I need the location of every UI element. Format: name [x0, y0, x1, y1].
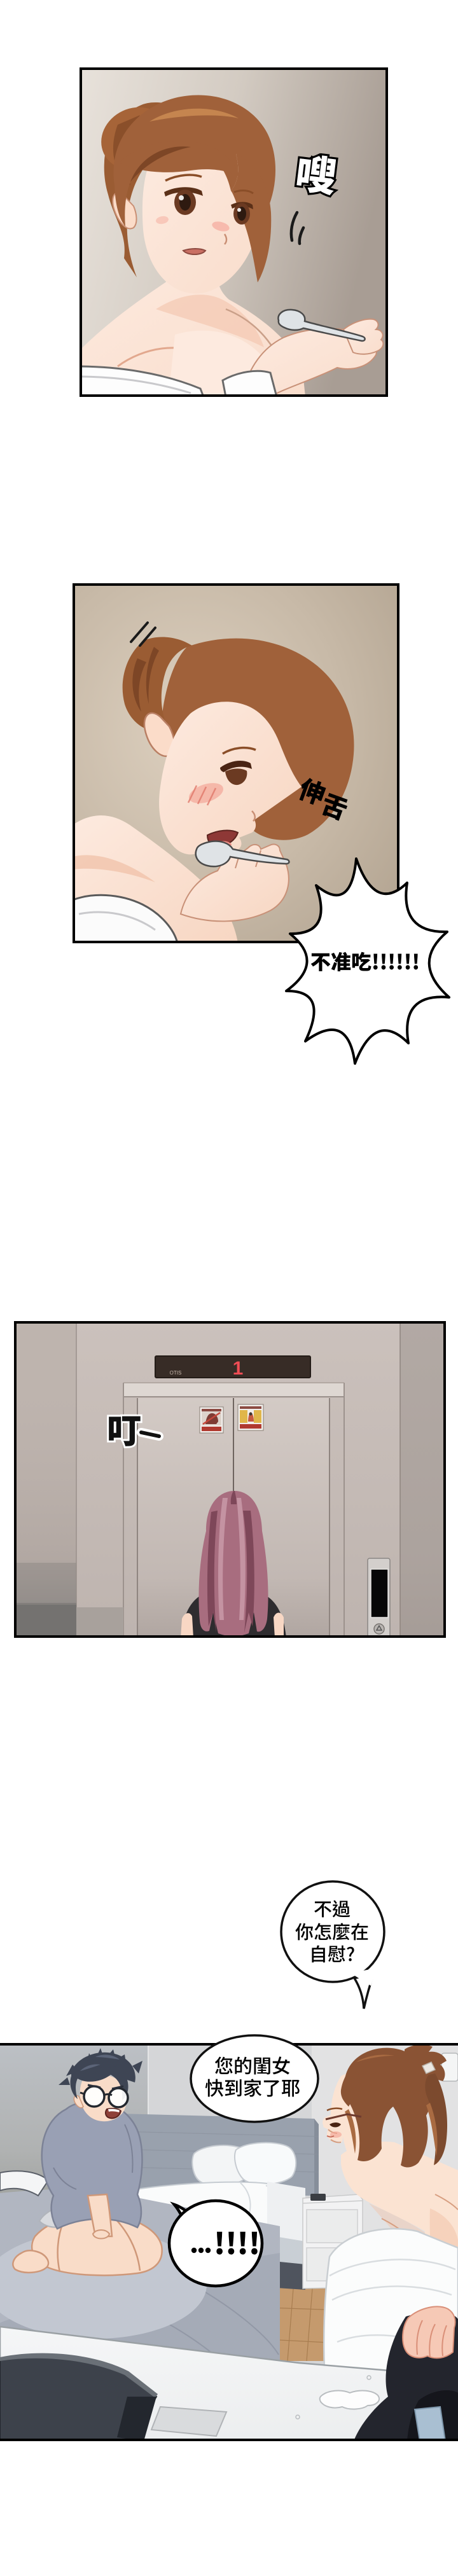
svg-text:1: 1 [233, 1358, 244, 1379]
svg-text:OTIS: OTIS [170, 1370, 182, 1376]
